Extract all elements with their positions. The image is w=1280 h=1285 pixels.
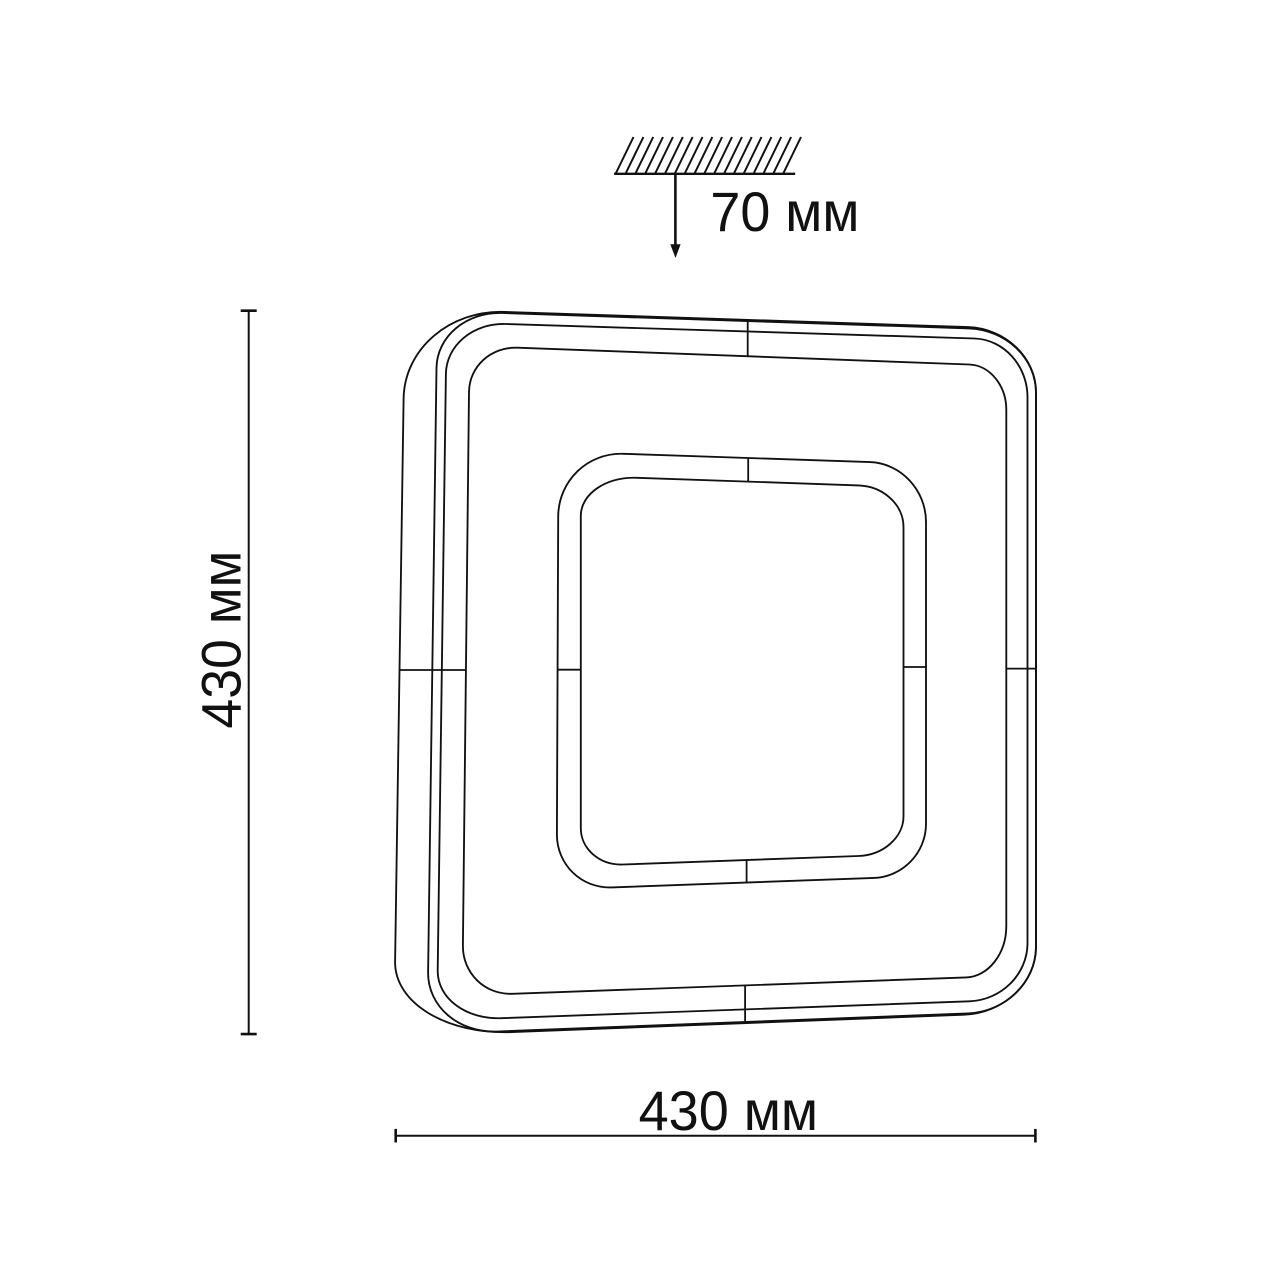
- svg-text:70 мм: 70 мм: [710, 181, 859, 243]
- svg-text:430 мм: 430 мм: [639, 1080, 819, 1142]
- svg-text:430 мм: 430 мм: [191, 551, 253, 729]
